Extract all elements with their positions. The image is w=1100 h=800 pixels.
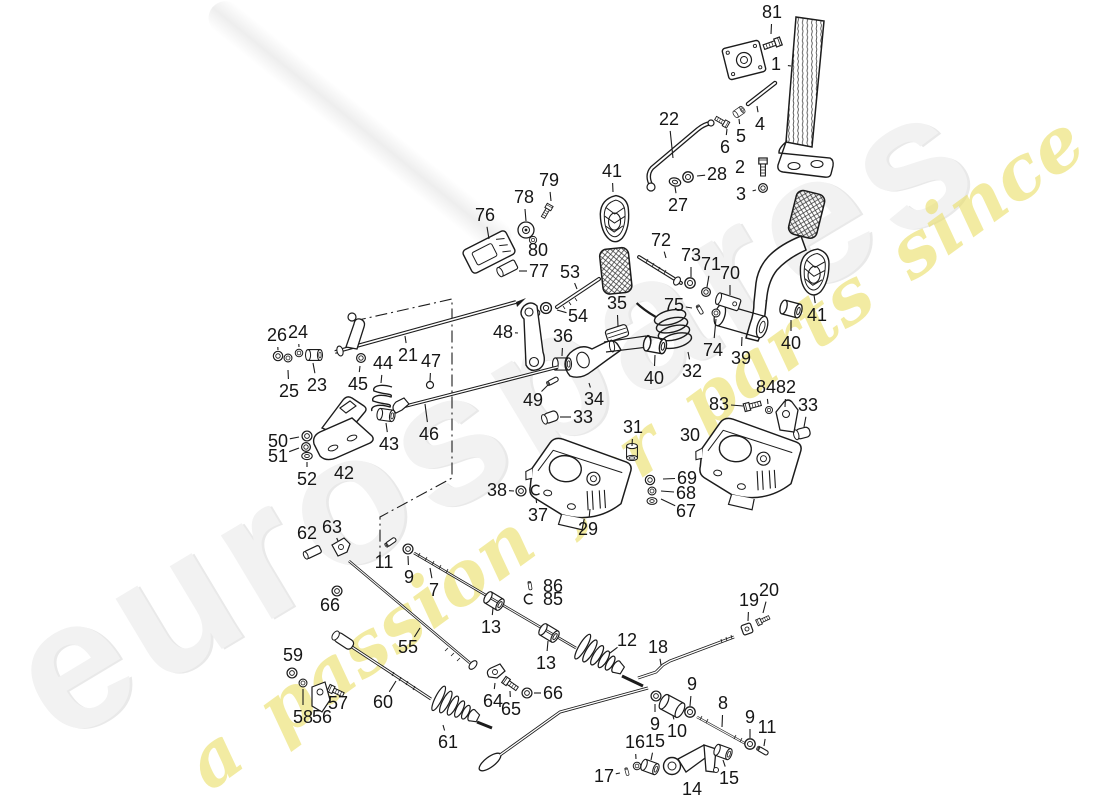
callout-44: 44: [373, 353, 393, 383]
callout-54: 54: [557, 306, 588, 326]
callout-number: 4: [755, 114, 765, 134]
callout-number: 40: [644, 368, 664, 388]
callout-number: 10: [667, 721, 687, 741]
callout-number: 12: [617, 630, 637, 650]
callout-66: 66: [534, 683, 563, 703]
callout-2: 2: [735, 157, 745, 177]
callout-number: 33: [573, 407, 593, 427]
callout-80: 80: [528, 240, 548, 260]
callout-30: 30: [680, 425, 700, 445]
callout-number: 66: [543, 683, 563, 703]
callout-number: 66: [320, 595, 340, 615]
callout-number: 45: [348, 374, 368, 394]
callout-24: 24: [288, 322, 308, 347]
callout-22: 22: [659, 109, 679, 158]
callout-74: 74: [703, 319, 723, 360]
callout-number: 65: [501, 699, 521, 719]
callout-6: 6: [720, 129, 730, 157]
callout-number: 29: [578, 519, 598, 539]
callout-35: 35: [607, 293, 627, 326]
callout-41: 41: [807, 295, 827, 325]
callout-number: 35: [607, 293, 627, 313]
callout-49: 49: [523, 385, 548, 410]
callout-21: 21: [398, 336, 418, 365]
callout-number: 81: [762, 2, 782, 22]
callout-number: 5: [736, 126, 746, 146]
callout-11: 11: [375, 552, 394, 572]
callout-16: 16: [625, 732, 645, 759]
callout-number: 33: [798, 395, 818, 415]
callout-5: 5: [736, 119, 746, 146]
callout-47: 47: [421, 351, 441, 381]
callout-number: 32: [682, 361, 702, 381]
callout-number: 9: [745, 707, 755, 727]
callout-number: 17: [594, 766, 614, 786]
callout-number: 42: [334, 463, 354, 483]
callout-number: 84: [756, 377, 776, 397]
callout-38: 38: [487, 480, 514, 500]
callout-number: 7: [429, 580, 439, 600]
callout-number: 38: [487, 480, 507, 500]
callout-12: 12: [610, 630, 637, 653]
callout-number: 75: [664, 295, 684, 315]
callout-14: 14: [682, 779, 702, 799]
callout-66: 66: [320, 595, 340, 615]
callout-18: 18: [648, 637, 668, 665]
callout-71: 71: [701, 254, 721, 287]
callout-76: 76: [475, 205, 495, 239]
callout-8: 8: [718, 693, 728, 727]
callout-number: 79: [539, 170, 559, 190]
callout-number: 2: [735, 157, 745, 177]
callout-number: 70: [720, 263, 740, 283]
callout-19: 19: [739, 590, 759, 621]
callout-number: 59: [283, 645, 303, 665]
callout-number: 48: [493, 322, 513, 342]
callout-number: 39: [731, 348, 751, 368]
callout-number: 80: [528, 240, 548, 260]
callout-number: 56: [312, 707, 332, 727]
callout-number: 37: [528, 505, 548, 525]
callout-13: 13: [481, 608, 501, 637]
callout-1: 1: [771, 54, 791, 74]
callout-number: 63: [322, 517, 342, 537]
callout-9: 9: [687, 674, 697, 706]
callout-40: 40: [644, 355, 664, 388]
callout-number: 83: [709, 394, 729, 414]
callout-77: 77: [519, 261, 549, 281]
callout-27: 27: [668, 187, 688, 215]
callout-42: 42: [334, 463, 354, 483]
callout-number: 26: [267, 325, 287, 345]
callout-59: 59: [283, 645, 303, 665]
callout-65: 65: [501, 691, 521, 719]
callout-number: 28: [707, 164, 727, 184]
callout-number: 43: [379, 434, 399, 454]
callout-82: 82: [776, 377, 796, 407]
callout-48: 48: [493, 322, 518, 342]
callout-number: 31: [623, 417, 643, 437]
callout-55: 55: [398, 628, 420, 657]
callout-61: 61: [438, 725, 458, 752]
callout-number: 16: [625, 732, 645, 752]
callout-number: 27: [668, 195, 688, 215]
callout-17: 17: [594, 766, 620, 786]
callout-number: 11: [375, 552, 394, 572]
callout-20: 20: [759, 580, 779, 613]
callout-26: 26: [267, 325, 287, 350]
callout-51: 51: [268, 446, 299, 466]
callout-7: 7: [429, 568, 439, 600]
callout-number: 47: [421, 351, 441, 371]
callout-31: 31: [623, 417, 643, 446]
callout-number: 62: [297, 523, 317, 543]
callout-number: 1: [771, 54, 781, 74]
callout-32: 32: [682, 352, 702, 381]
callout-33: 33: [798, 395, 818, 427]
callout-83: 83: [709, 394, 743, 414]
callout-number: 25: [279, 381, 299, 401]
callout-number: 9: [404, 567, 414, 587]
callout-number: 49: [523, 390, 543, 410]
callout-number: 30: [680, 425, 700, 445]
callout-number: 44: [373, 353, 393, 373]
callout-number: 72: [651, 230, 671, 250]
callout-15: 15: [719, 760, 739, 788]
callout-46: 46: [419, 404, 439, 444]
callout-43: 43: [379, 423, 399, 454]
callout-85: 85: [543, 589, 563, 609]
callout-28: 28: [697, 164, 727, 184]
callout-number: 46: [419, 424, 439, 444]
callout-number: 23: [307, 375, 327, 395]
callout-3: 3: [736, 184, 756, 204]
callout-37: 37: [528, 498, 548, 525]
callout-73: 73: [681, 245, 701, 277]
callout-number: 55: [398, 637, 418, 657]
callout-number: 3: [736, 184, 746, 204]
callout-number: 60: [373, 692, 393, 712]
callout-79: 79: [539, 170, 559, 201]
parts-diagram-page: eurospares a passion for parts since 198…: [0, 0, 1100, 800]
callout-68: 68: [661, 483, 696, 503]
callout-number: 19: [739, 590, 759, 610]
callout-number: 14: [682, 779, 702, 799]
callout-29: 29: [578, 509, 598, 539]
callout-number: 73: [681, 245, 701, 265]
callout-number: 13: [536, 653, 556, 673]
callout-number: 82: [776, 377, 796, 397]
callout-23: 23: [307, 363, 327, 395]
callout-75: 75: [664, 295, 692, 315]
callout-number: 77: [529, 261, 549, 281]
callout-number: 15: [719, 768, 739, 788]
callout-4: 4: [755, 106, 765, 134]
callout-number: 13: [481, 617, 501, 637]
callout-25: 25: [279, 370, 299, 401]
callout-52: 52: [297, 462, 317, 489]
callout-9: 9: [404, 556, 414, 587]
callout-62: 62: [297, 523, 317, 543]
callout-number: 67: [676, 501, 696, 521]
callout-number: 22: [659, 109, 679, 129]
callout-number: 20: [759, 580, 779, 600]
callout-number: 78: [514, 187, 534, 207]
callout-33: 33: [560, 407, 593, 427]
callout-9: 9: [745, 707, 755, 738]
callout-number: 9: [687, 674, 697, 694]
callout-56: 56: [312, 707, 332, 727]
callout-number: 76: [475, 205, 495, 225]
callout-number: 40: [781, 333, 801, 353]
callout-number: 85: [543, 589, 563, 609]
callout-number: 68: [676, 483, 696, 503]
callout-9: 9: [650, 704, 660, 734]
callout-78: 78: [514, 187, 534, 221]
callout-63: 63: [322, 517, 342, 541]
callout-number: 58: [293, 707, 313, 727]
callout-40: 40: [781, 320, 801, 353]
callout-60: 60: [373, 681, 396, 712]
callout-number: 6: [720, 137, 730, 157]
callout-70: 70: [720, 263, 740, 295]
callout-36: 36: [553, 326, 573, 356]
callout-number: 74: [703, 340, 723, 360]
callout-number: 51: [268, 446, 288, 466]
callout-number: 21: [398, 345, 418, 365]
callout-number: 71: [701, 254, 721, 274]
callout-number: 52: [297, 469, 317, 489]
callout-15: 15: [645, 731, 665, 760]
callout-number: 18: [648, 637, 668, 657]
callout-number: 34: [584, 389, 604, 409]
callout-45: 45: [348, 366, 368, 394]
callout-84: 84: [756, 377, 776, 404]
callout-39: 39: [731, 337, 751, 368]
callout-number: 36: [553, 326, 573, 346]
callout-41: 41: [602, 161, 622, 192]
callout-number: 8: [718, 693, 728, 713]
callout-number: 24: [288, 322, 308, 342]
callout-72: 72: [651, 230, 671, 258]
callout-number: 41: [602, 161, 622, 181]
callout-53: 53: [560, 262, 580, 289]
callout-58: 58: [293, 689, 313, 727]
callout-81: 81: [762, 2, 782, 34]
callout-number: 15: [645, 731, 665, 751]
callout-number: 41: [807, 305, 827, 325]
callout-34: 34: [584, 383, 604, 409]
callout-number: 11: [758, 717, 777, 737]
callout-11: 11: [758, 717, 777, 746]
callout-number: 53: [560, 262, 580, 282]
callout-67: 67: [661, 499, 696, 521]
callout-number: 61: [438, 732, 458, 752]
callout-13: 13: [536, 641, 556, 673]
callout-layer: 1812245622832741797876807753727371703554…: [0, 0, 1100, 800]
callout-10: 10: [667, 716, 687, 741]
callout-number: 54: [568, 306, 588, 326]
